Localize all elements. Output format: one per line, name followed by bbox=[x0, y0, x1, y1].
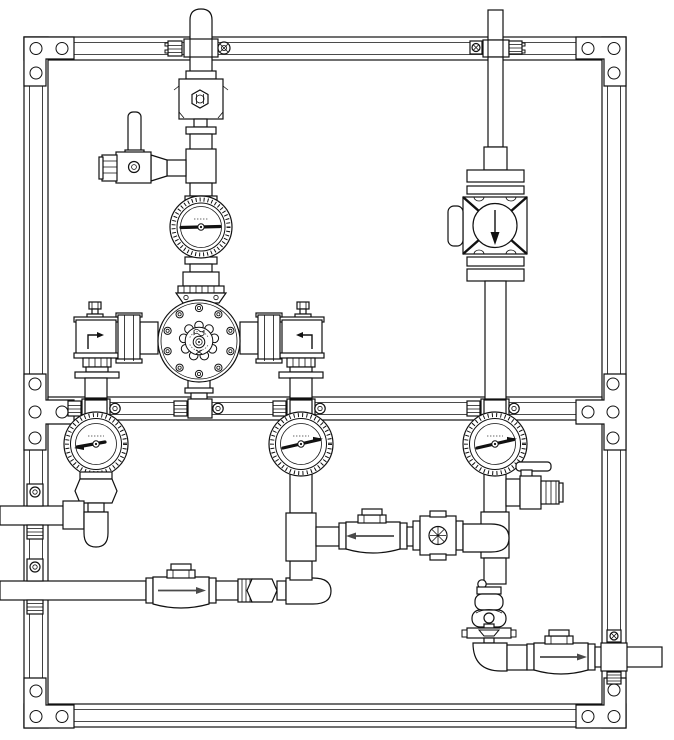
elbow-into-riser bbox=[463, 524, 509, 552]
elbow-down-right bbox=[473, 643, 507, 671]
vacuum-breaker: Vacuum breaker / relief fitting stack bbox=[462, 580, 516, 643]
middle-cross-run: Swing check valve, flow arrow left Ball … bbox=[286, 509, 509, 561]
right-angle-valve: Right angle stop valve, flow arrow up-th… bbox=[279, 302, 324, 398]
drawing-canvas: Piping assembly technical drawing (mixin… bbox=[0, 0, 674, 740]
pipe-segment bbox=[183, 272, 219, 286]
pipe-segment bbox=[277, 581, 286, 600]
gauge-middle: Middle pressure gauge bbox=[269, 412, 333, 476]
hex-fitting bbox=[75, 479, 117, 503]
pipe-segment bbox=[316, 527, 339, 546]
elbow-up-left bbox=[286, 578, 331, 604]
corner-plate-top-right bbox=[576, 37, 626, 86]
union-left: Pipe union, left of regulator bbox=[116, 313, 158, 363]
exit-pipe-upper-left bbox=[0, 506, 64, 525]
pipe-segment bbox=[484, 147, 507, 170]
tee-fitting bbox=[286, 513, 316, 561]
corner-plate-bottom-left bbox=[24, 678, 74, 728]
pipe-segment bbox=[190, 264, 212, 272]
pipe-clamp-top-right-rail: Pipe-to-rail clamp with screw and ribbed… bbox=[470, 40, 525, 57]
valve-handle bbox=[128, 112, 141, 154]
lower-manifold: Left pressure gauge Middle pressure gaug… bbox=[0, 400, 662, 684]
lower-left-inlet-run: Lower-left horizontal pipe, exits frame … bbox=[0, 559, 331, 614]
junction-plate-middle-right bbox=[576, 374, 626, 450]
bottom-right-outlet-run: Bottom-right horizontal pipe, exits fram… bbox=[507, 630, 662, 684]
gauge-left: Left pressure gauge bbox=[64, 412, 128, 476]
right-supply-train: Right riser pipe (exits frame top) Pipe-… bbox=[448, 10, 527, 399]
hex-union: Hex union on lower-left run bbox=[238, 579, 277, 602]
pipe-segment bbox=[290, 561, 312, 580]
corner-plate-top-left bbox=[24, 37, 74, 86]
union-right: Pipe union, right of regulator bbox=[240, 313, 282, 363]
pipe-segment bbox=[485, 281, 506, 399]
corner-plate-bottom-right bbox=[576, 678, 626, 728]
coupling bbox=[63, 501, 84, 529]
pipe-segment bbox=[488, 57, 503, 147]
left-outlet-branch: Upper-left horizontal pipe, exits frame … bbox=[0, 472, 117, 547]
check-valve-lower-left: Swing check valve, flow arrow right bbox=[146, 564, 216, 608]
left-angle-valve: Left angle stop valve, flow arrow up-the… bbox=[74, 302, 119, 398]
coupling bbox=[507, 645, 527, 670]
riser-pipe bbox=[488, 10, 503, 40]
check-valve-bottom-right: Swing check valve, flow arrow right bbox=[527, 630, 595, 674]
hose-cap bbox=[102, 155, 117, 181]
pipe-segment bbox=[190, 183, 212, 196]
inline-thermometer: Inline dial thermometer bbox=[170, 196, 232, 264]
check-valve-mid: Swing check valve, flow arrow left bbox=[339, 509, 407, 553]
regulator-body bbox=[158, 300, 240, 399]
frame: Extruded aluminum mounting frame bbox=[24, 37, 626, 728]
piping-assembly-drawing: Piping assembly technical drawing (mixin… bbox=[0, 0, 674, 740]
pipe-segment bbox=[484, 558, 506, 584]
elbow-down-left bbox=[84, 512, 108, 547]
frame-rails bbox=[24, 37, 626, 728]
vertical-check-valve: Vertical check valve, flow arrow down bbox=[448, 170, 527, 281]
pipe-segment bbox=[216, 581, 238, 600]
ball-valve: Ball valve with cross-hatched port bbox=[413, 511, 463, 560]
relief-valve: Pressure relief / reducing valve with he… bbox=[174, 71, 228, 134]
inlet-pipe-lower-left bbox=[0, 581, 146, 600]
